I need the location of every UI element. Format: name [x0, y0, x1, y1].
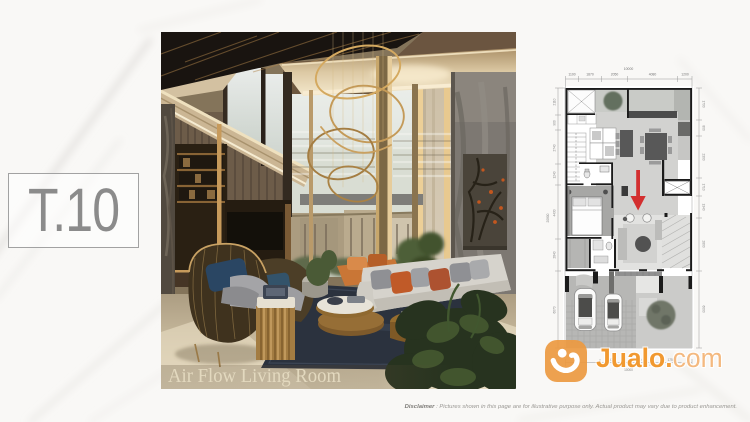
svg-text:2740: 2740 — [553, 144, 557, 151]
svg-text:6000: 6000 — [702, 305, 706, 312]
svg-text:2840: 2840 — [553, 251, 557, 258]
svg-text:2110: 2110 — [553, 98, 557, 105]
svg-text:2800: 2800 — [702, 240, 706, 247]
svg-text:20800: 20800 — [546, 213, 550, 222]
svg-text:1790: 1790 — [702, 100, 706, 107]
svg-text:10000: 10000 — [624, 67, 634, 71]
svg-text:1710: 1710 — [702, 183, 706, 190]
svg-text:1240: 1240 — [553, 171, 557, 178]
svg-text:6070: 6070 — [553, 306, 557, 313]
svg-text:900: 900 — [553, 120, 557, 126]
svg-text:800: 800 — [702, 125, 706, 131]
svg-text:2050: 2050 — [611, 73, 619, 77]
svg-text:Air Flow Living Room: Air Flow Living Room — [168, 365, 341, 387]
svg-text:1100: 1100 — [568, 73, 575, 77]
svg-text:2300: 2300 — [702, 153, 706, 160]
svg-text:1870: 1870 — [586, 73, 594, 77]
svg-text:1340: 1340 — [702, 203, 706, 210]
svg-text:4080: 4080 — [649, 73, 657, 77]
svg-text:1200: 1200 — [681, 73, 689, 77]
svg-text:4430: 4430 — [553, 209, 557, 216]
